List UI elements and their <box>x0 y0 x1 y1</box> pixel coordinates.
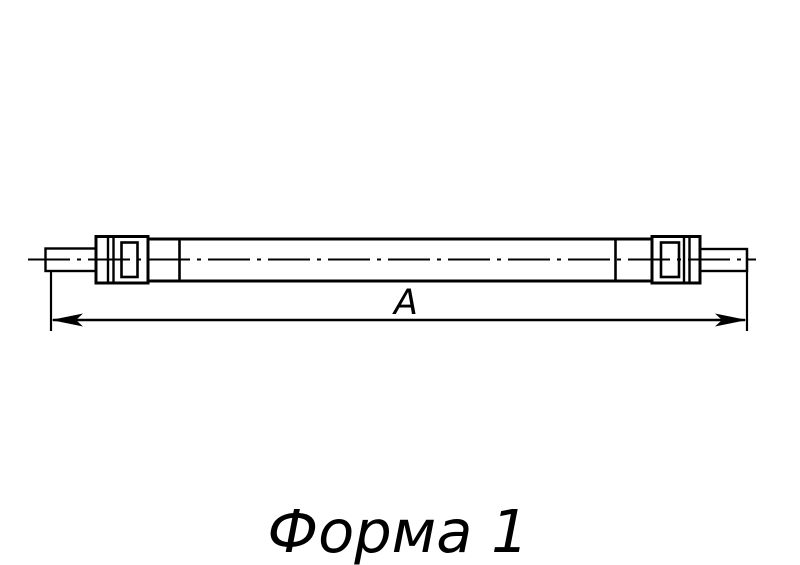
dimension-label: A <box>392 283 418 323</box>
shaft-assembly-drawing: A Форма 1 <box>0 0 800 565</box>
figure-caption: Форма 1 <box>267 497 528 565</box>
technical-drawing-page: A Форма 1 <box>0 0 800 565</box>
